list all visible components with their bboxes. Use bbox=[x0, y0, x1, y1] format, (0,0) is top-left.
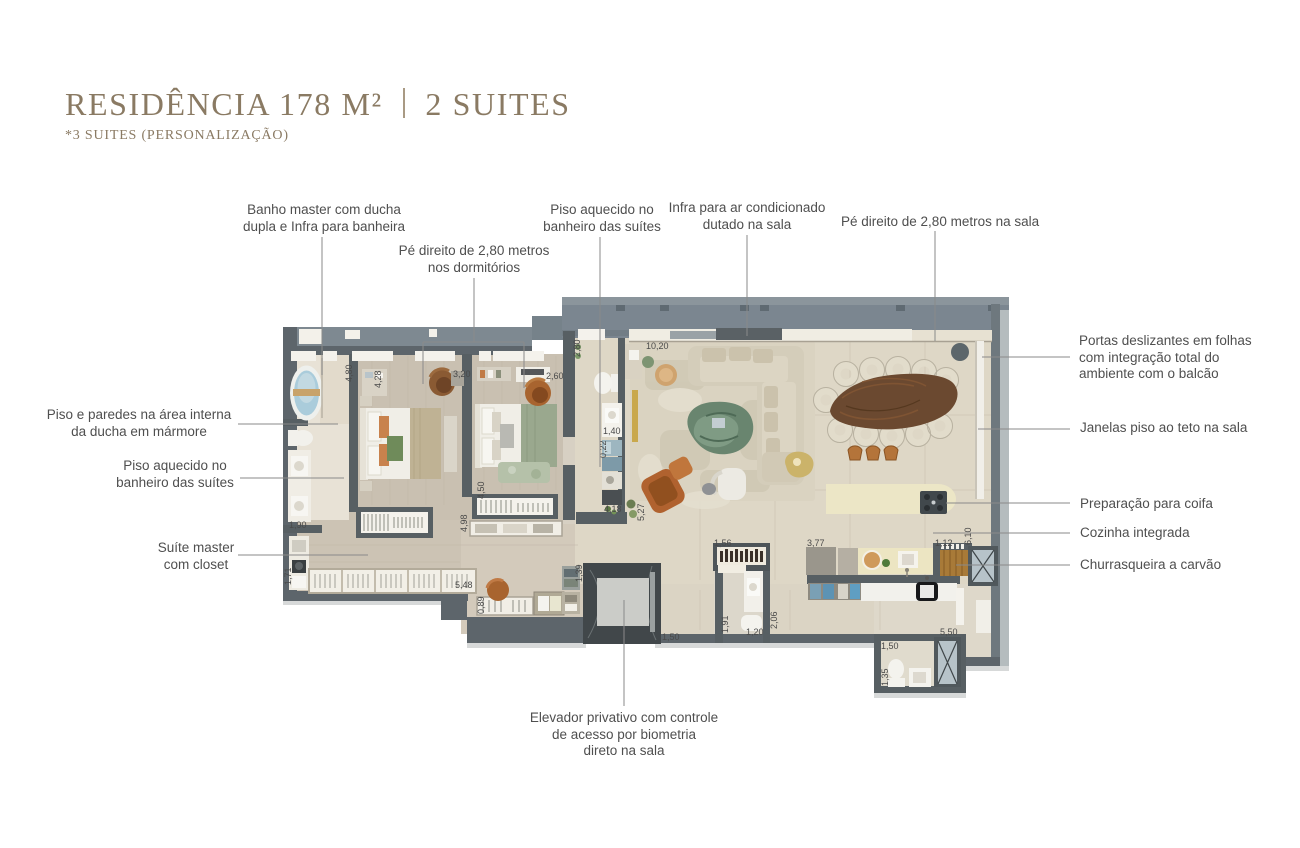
svg-text:1,91: 1,91 bbox=[720, 615, 730, 633]
svg-text:1,20: 1,20 bbox=[746, 627, 764, 637]
svg-text:1,12: 1,12 bbox=[935, 538, 953, 548]
svg-text:1,50: 1,50 bbox=[662, 632, 680, 642]
svg-text:4,18: 4,18 bbox=[604, 504, 622, 514]
svg-text:1,90: 1,90 bbox=[289, 520, 307, 530]
svg-text:2,60: 2,60 bbox=[546, 371, 564, 381]
svg-text:0,89: 0,89 bbox=[476, 596, 486, 614]
svg-text:1,40: 1,40 bbox=[603, 426, 621, 436]
svg-text:4,98: 4,98 bbox=[459, 514, 469, 532]
svg-text:4,80: 4,80 bbox=[344, 364, 354, 382]
svg-text:1,56: 1,56 bbox=[714, 538, 732, 548]
svg-text:5,48: 5,48 bbox=[455, 580, 473, 590]
svg-text:6,10: 6,10 bbox=[963, 527, 973, 545]
svg-text:5,50: 5,50 bbox=[940, 627, 958, 637]
svg-text:3,77: 3,77 bbox=[807, 538, 825, 548]
svg-text:2,06: 2,06 bbox=[769, 611, 779, 629]
svg-text:1,50: 1,50 bbox=[881, 641, 899, 651]
svg-text:5,27: 5,27 bbox=[636, 503, 646, 521]
svg-text:4,28: 4,28 bbox=[373, 370, 383, 388]
svg-text:2,80: 2,80 bbox=[572, 339, 582, 357]
svg-text:4,50: 4,50 bbox=[476, 481, 486, 499]
svg-text:1,39: 1,39 bbox=[574, 564, 584, 582]
svg-text:1,35: 1,35 bbox=[880, 668, 890, 686]
svg-text:10,20: 10,20 bbox=[646, 341, 669, 351]
svg-text:3,20: 3,20 bbox=[453, 369, 471, 379]
svg-text:1,71: 1,71 bbox=[283, 567, 293, 585]
